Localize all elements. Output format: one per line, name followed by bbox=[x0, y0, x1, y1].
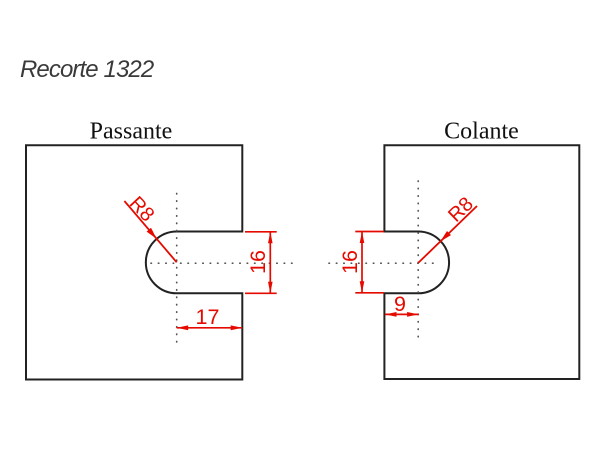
svg-text:9: 9 bbox=[394, 292, 406, 316]
svg-text:R8: R8 bbox=[444, 193, 478, 227]
svg-text:Recorte 1322: Recorte 1322 bbox=[20, 56, 154, 83]
svg-text:16: 16 bbox=[338, 250, 362, 274]
svg-text:Colante: Colante bbox=[444, 119, 519, 145]
svg-text:16: 16 bbox=[246, 250, 270, 274]
svg-text:R8: R8 bbox=[125, 192, 159, 226]
svg-text:17: 17 bbox=[196, 305, 220, 329]
svg-text:Passante: Passante bbox=[90, 119, 173, 145]
